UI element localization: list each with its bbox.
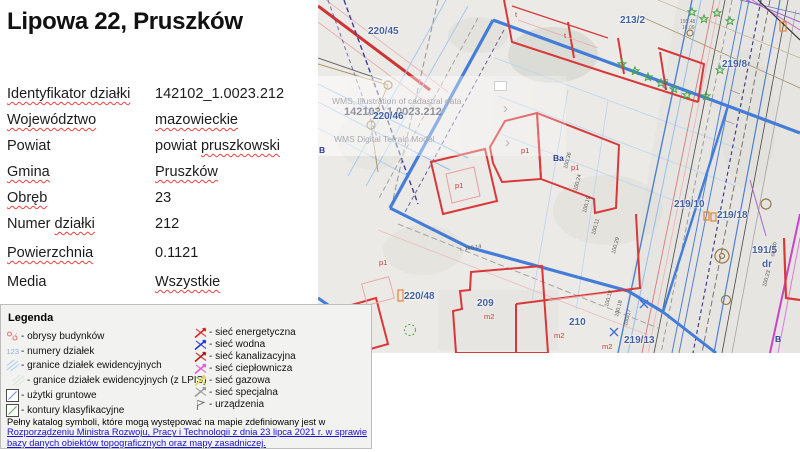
- detail-label: Identyfikator działki: [7, 86, 155, 102]
- devices-icon: [194, 398, 209, 411]
- detail-value: 142102_1.0023.212: [155, 86, 313, 102]
- detail-row: Powiatpowiat pruszkowski: [7, 138, 313, 154]
- legend-left-column: - obrysy budynków123- numery działek- gr…: [6, 329, 196, 418]
- wms-layer-id: 142102_1.0023.212: [344, 106, 580, 118]
- legend-label: - sieć gazowa: [209, 375, 270, 386]
- legend-item: - granice działek ewidencyjnych: [6, 359, 196, 374]
- gas-network-icon: [194, 375, 209, 387]
- legend-label: - granice działek ewidencyjnych (z LPIS): [27, 375, 207, 386]
- checkbox-icon[interactable]: [494, 81, 507, 91]
- legend-label: - obrysy budynków: [21, 331, 104, 342]
- map-drawing: [318, 0, 800, 353]
- property-details: Identyfikator działki142102_1.0023.212Wo…: [7, 86, 313, 290]
- special-network-icon: [194, 386, 209, 398]
- detail-label: Numer działki: [7, 216, 155, 232]
- legend-label: - sieć energetyczna: [209, 327, 296, 338]
- parcel-borders-icon: [6, 359, 21, 372]
- wms-layer-item[interactable]: WMS, Illustration of cadastral data 1421…: [332, 96, 580, 118]
- detail-row: Numer działki212: [7, 216, 313, 232]
- digits-icon: 123: [6, 345, 21, 357]
- legend-item: - użytki gruntowe: [6, 388, 196, 403]
- detail-label: Media: [7, 274, 155, 290]
- legend-item: - kontury klasyfikacyjne: [6, 403, 196, 418]
- heating-network-icon: [194, 363, 209, 375]
- detail-label: Powierzchnia: [7, 245, 155, 261]
- legend-label: - numery działek: [21, 346, 94, 357]
- legend-footer-text: Pełny katalog symboli, które mogą występ…: [7, 417, 325, 427]
- legend-label: - sieć kanalizacyjna: [209, 351, 296, 362]
- chevron-right-icon[interactable]: ›: [503, 100, 508, 117]
- legend-item: - obrysy budynków: [6, 329, 196, 344]
- legend-label: - sieć specjalna: [209, 387, 278, 398]
- legend-item: - sieć specjalna: [194, 386, 372, 398]
- sewage-network-icon: [194, 351, 209, 363]
- detail-label: Powiat: [7, 138, 155, 154]
- map-view[interactable]: WMS, Illustration of cadastral data 1421…: [318, 0, 800, 353]
- detail-label: Województwo: [7, 112, 155, 128]
- legend-label: - sieć ciepłownicza: [209, 363, 292, 374]
- legend-footer: Pełny katalog symboli, które mogą występ…: [7, 417, 367, 448]
- parcel-borders-lpis-icon: [12, 374, 27, 387]
- svg-text:123: 123: [7, 347, 20, 356]
- legend-item: 123- numery działek: [6, 344, 196, 359]
- power-network-icon: [194, 327, 209, 339]
- buildings-icon: [6, 330, 21, 343]
- detail-row: GminaPruszków: [7, 164, 313, 180]
- legend-label: - użytki gruntowe: [21, 390, 97, 401]
- detail-row: Województwomazowieckie: [7, 112, 313, 128]
- legend-label: - granice działek ewidencyjnych: [21, 360, 162, 371]
- chevron-right-icon[interactable]: ›: [505, 134, 510, 151]
- land-use-icon: [6, 389, 21, 402]
- water-network-icon: [194, 339, 209, 351]
- detail-row: Powierzchnia0.1121: [7, 245, 313, 261]
- detail-row: Identyfikator działki142102_1.0023.212: [7, 86, 313, 102]
- legend-item: - sieć ciepłownicza: [194, 363, 372, 375]
- legend-item: - urządzenia: [194, 398, 372, 410]
- legend-label: - sieć wodna: [209, 339, 265, 350]
- detail-value: 0.1121: [155, 245, 313, 261]
- detail-value: Pruszków: [155, 164, 313, 180]
- legend-panel: Legenda - obrysy budynków123- numery dzi…: [0, 304, 372, 449]
- wms-layer-panel: WMS, Illustration of cadastral data 1421…: [318, 76, 566, 156]
- detail-label: Obręb: [7, 190, 155, 206]
- soil-contours-icon: [6, 404, 21, 417]
- legend-item: - sieć gazowa: [194, 375, 372, 387]
- property-info-panel: Lipowa 22, Pruszków Identyfikator działk…: [7, 0, 313, 300]
- detail-row: MediaWszystkie: [7, 274, 313, 290]
- legend-item: - granice działek ewidencyjnych (z LPIS): [6, 373, 196, 388]
- detail-row: Obręb23: [7, 190, 313, 206]
- legend-item: - sieć wodna: [194, 339, 372, 351]
- legend-label: - urządzenia: [209, 399, 264, 410]
- legend-item: - sieć energetyczna: [194, 327, 372, 339]
- detail-value: mazowieckie: [155, 112, 313, 128]
- detail-value: Wszystkie: [155, 274, 313, 290]
- legend-label: - kontury klasyfikacyjne: [21, 405, 124, 416]
- detail-value: 212: [155, 216, 313, 232]
- legend-title: Legenda: [8, 312, 53, 324]
- legend-item: - sieć kanalizacyjna: [194, 351, 372, 363]
- legend-right-column: - sieć energetyczna- sieć wodna- sieć ka…: [194, 327, 372, 410]
- detail-value: 23: [155, 190, 313, 206]
- wms-layer-title: WMS, Illustration of cadastral data: [332, 96, 580, 106]
- map-wash: [318, 0, 800, 353]
- wms-layer-title: WMS Digital Terrain Model: [334, 134, 582, 144]
- detail-value: powiat pruszkowski: [155, 138, 313, 154]
- detail-label: Gmina: [7, 164, 155, 180]
- regulation-link[interactable]: Rozporządzeniu Ministra Rozwoju, Pracy i…: [7, 427, 367, 447]
- page-title: Lipowa 22, Pruszków: [7, 8, 313, 36]
- wms-layer-item[interactable]: WMS Digital Terrain Model ›: [334, 134, 582, 144]
